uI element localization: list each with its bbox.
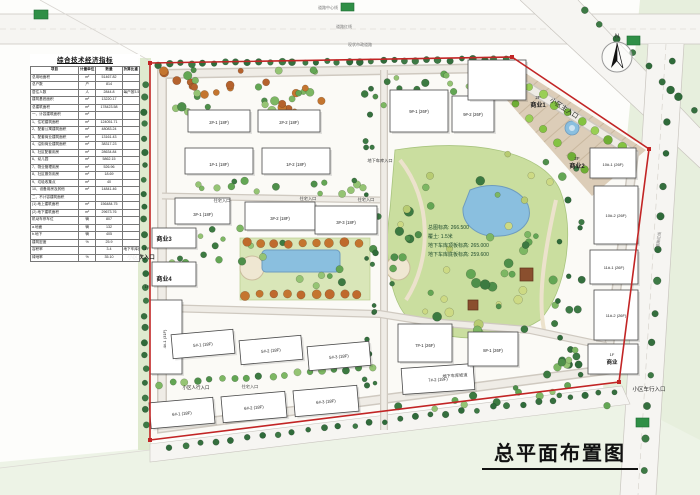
label-building-9-1: 9#-1 (26F) [409,109,429,114]
table-row: 10、设备用房及其他m²14841.46 [31,187,140,195]
label-building-10-1: 10#-1 (26F) [603,162,625,167]
tree [275,432,281,438]
tree [496,304,501,309]
tree [143,366,149,372]
tree [142,406,148,412]
tree [557,335,562,340]
label-shangye3-floor: 1F [145,246,150,251]
tree [405,235,411,241]
table-cell: 总用地面积 [31,74,79,82]
tree [363,138,369,144]
tree [143,422,149,428]
tree [646,63,652,69]
tree [505,222,513,230]
tree [426,172,433,179]
table-cell [122,232,139,240]
label-building-11-1: 11#-1 (26F) [604,265,625,270]
table-cell: 3.4 [96,247,122,255]
tree [578,372,583,377]
tree [170,379,176,385]
tree [566,306,573,313]
tree [254,189,260,195]
tree [403,205,411,213]
table-cell: 8、社区服务用房 [31,172,79,180]
table-cell: m² [78,157,95,165]
table-row: 1、住宅建筑面积m²124051.71 [31,119,140,127]
tree [373,381,377,385]
table-row: 总用地面积m²51467.82 [31,74,140,82]
table-cell: 地下车库面积折半计算 [122,247,139,255]
table-cell [122,179,139,187]
table-cell [122,239,139,247]
tree [480,280,490,290]
label-residence-entrance-2: 住宅入口 [214,197,231,203]
table-cell: 总户数 [31,82,79,90]
tree [596,390,601,395]
tree [659,79,666,86]
table-cell: m² [78,172,95,180]
table-cell: 25.9 [96,239,122,247]
tree [501,270,508,277]
tree [243,238,252,247]
table-cell [122,202,139,210]
tree [275,67,282,74]
tree [447,81,453,87]
tree [288,59,295,66]
table-cell: 2844.8 [96,89,122,97]
table-row: 总户数户814 [31,82,140,90]
table-row: (2) 地下建筑面积m²29673.76 [31,209,140,217]
tree [194,90,201,97]
tree [212,243,219,250]
tree [324,58,330,64]
tree [509,271,515,277]
tree [256,290,263,297]
tree [572,347,578,353]
label-building-3-3: 3#-3 (18F) [336,220,356,225]
table-cell: 容积率 [31,247,79,255]
table-row: 二、不计容建筑面积 [31,194,140,202]
label-building-10-2: 10#-2 (26F) [606,213,628,218]
label-building-1-1: 1#-1 (18F) [209,162,229,167]
tree [423,56,429,62]
tree [539,125,547,133]
tree [469,392,477,400]
tree [240,291,249,300]
table-cell [122,112,139,120]
tree [398,416,404,422]
tree [306,427,311,432]
tree [573,353,580,360]
tree [216,256,223,263]
table-cell: 辆 [78,232,95,240]
tree [232,375,239,382]
table-cell: 5、社区配套用房 [31,149,79,157]
table-cell [122,254,139,262]
table-cell [122,209,139,217]
tree [270,290,278,298]
table-cell: m² [78,149,95,157]
label-elevation-note: 覆土: 1.5米 [428,233,453,240]
table-cell: 526.96 [96,164,122,172]
tree [428,290,434,296]
table-cell: 814 [96,82,122,90]
table-cell [122,127,139,135]
tree [612,390,617,395]
label-building-7-1: 7#-1 (26F) [415,343,435,348]
tree [194,378,201,385]
boundary-marker [647,147,651,151]
tree [214,185,221,192]
boundary-marker [510,55,514,59]
tree [279,100,286,107]
tree [270,240,278,248]
table-cell: 二、不计容建筑面积 [31,194,79,202]
tree [412,413,419,420]
tree [281,372,287,378]
table-row: 4、沿街商业建筑面积m²38317.23 [31,142,140,150]
label-existing-road: 现状市政道路 [348,41,372,47]
tree [458,407,464,413]
tree [227,437,233,443]
tree [428,412,433,417]
tree [372,309,377,314]
tree [648,339,655,346]
table-cell: 40 [96,179,122,187]
table-row: 一、计容建筑面积m² [31,112,140,120]
tree [392,57,398,63]
tree [461,401,468,408]
tree [466,269,476,279]
label-building-11-2: 11#-2 (26F) [606,313,627,318]
tree [643,402,650,409]
table-cell: m² [78,142,95,150]
tree [237,225,244,232]
table-cell [122,172,139,180]
site-plan-drawing: 2F商业12F商业2商业31F商业41F1F商业小区主入口小区次入口小区车行入口… [0,0,700,495]
tree [183,443,189,449]
tree [166,60,173,67]
tree [367,112,373,118]
tree [486,233,494,241]
tree [141,340,148,347]
tree [504,259,513,268]
tree [550,398,556,404]
boundary-marker [617,380,621,384]
table-cell [122,104,139,112]
tree [296,275,303,282]
tree [259,253,266,260]
label-building-9-2: 9#-2 (26F) [463,112,483,117]
tree [195,182,201,188]
tree [533,234,538,239]
tree [441,296,448,303]
table-header-row: 项目 计量单位 数量 折算比重 [31,67,140,75]
tree [296,90,302,96]
tree [471,278,481,288]
tree [660,183,667,190]
tree [198,440,204,446]
tree [591,127,599,135]
tree [443,267,450,274]
tree [373,94,378,99]
tree [596,21,602,27]
tree [213,89,219,95]
table-cell [78,194,95,202]
tree [450,88,457,95]
table-cell [122,187,139,195]
tree [143,82,149,88]
building [468,60,526,100]
tree [191,84,198,91]
table-row: 机动车停车位辆807 [31,217,140,225]
table-cell: 人 [78,89,95,97]
tree [604,135,613,144]
table-cell [122,74,139,82]
pavilion-small [468,300,478,310]
tree [141,177,146,182]
tree [143,270,149,276]
tree [568,395,573,400]
label-elevation-note: 总图标高: 266.500 [428,224,469,231]
road-name-stamp [341,3,354,11]
table-cell: 每户按3.5人计算 [122,89,139,97]
tree [382,420,387,425]
label-residence-entrance-4: 住宅入口 [358,196,375,202]
table-cell [96,194,122,202]
indicator-table: 项目 计量单位 数量 折算比重 总用地面积m²51467.82总户数户814居住… [30,66,140,262]
building [588,344,638,374]
label-road-redline: 道路红线 [336,23,352,29]
tree [415,231,422,238]
tree [141,191,147,197]
header-remark: 折算比重 [122,67,139,75]
tree [394,75,399,80]
building [262,148,330,174]
table-cell: a.地面 [31,224,79,232]
table-cell: 156484.75 [96,202,122,210]
label-elevation-note: 地下车库底板标高: 259.600 [428,251,489,258]
table-cell [122,97,139,105]
tree [209,226,215,232]
tree [200,90,208,98]
table-cell: 10、设备用房及其他 [31,187,79,195]
label-building-3-2: 3#-2 (18F) [270,216,290,221]
tree [652,310,659,317]
table-cell: m² [78,97,95,105]
table-row: 7、物业管理用房m²526.96 [31,164,140,172]
plaza-fountain-center [569,125,575,131]
table-row: 绿地率%35.10 [31,254,140,262]
tree [578,117,586,125]
tree [199,60,206,67]
tree [390,281,395,286]
tree [557,239,562,244]
table-row: 建筑密度%25.9 [31,239,140,247]
table-cell: 124051.71 [96,119,122,127]
tree [324,238,333,247]
table-row: a.地面辆132 [31,224,140,232]
table-row: 建筑基底面积m²13220.17 [31,97,140,105]
tree [341,290,350,299]
tree [141,352,147,358]
table-cell: m² [78,127,95,135]
tree [325,289,335,299]
table-cell: m² [78,104,95,112]
label-shangye1: 商业1 [530,101,546,109]
tree [155,382,162,389]
tree [228,183,235,190]
tree [519,286,527,294]
table-row: 6、幼儿园m²5862.15 [31,157,140,165]
tree [566,357,572,363]
table-cell: 13161.43 [96,134,122,142]
table-row: 2、配套公寓建筑面积m²48083.24 [31,127,140,135]
tree [521,197,528,204]
tree [505,151,511,157]
tree [578,225,583,230]
central-park [387,146,567,338]
table-cell: m² [78,202,95,210]
tree [262,101,269,108]
tree [238,258,246,266]
tree [355,239,363,247]
table-cell: 13220.17 [96,97,122,105]
table-cell: 5862.15 [96,157,122,165]
tree [445,308,454,317]
label-building-2-1: 2#-1 (18F) [209,120,229,125]
tree [657,213,665,221]
boundary-marker [148,438,152,442]
tree [581,7,588,14]
tree [362,377,367,382]
tree [283,290,291,298]
tree [543,371,551,379]
tree [299,239,307,247]
table-cell: (1) 地上建筑面积 [31,202,79,210]
tree [674,93,682,101]
tree [141,313,147,319]
tree [691,107,697,113]
label-building-3-1: 3#-1 (18F) [193,212,213,217]
table-cell: % [78,239,95,247]
table-cell: m² [78,74,95,82]
label-road-centerline: 道路中心线 [318,4,338,10]
tree [474,408,479,413]
label-garage-entrance: 地下车库入口 [367,157,392,164]
tree [366,419,372,425]
table-row: 居住人数人2844.8每户按3.5人计算 [31,89,140,97]
tree [338,278,346,286]
tree [423,309,428,314]
tree [310,67,317,74]
tree [370,262,375,267]
tree [364,383,370,389]
table-cell: 7、物业管理用房 [31,164,79,172]
tree [528,172,535,179]
table-cell [122,157,139,165]
table-cell: m² [78,164,95,172]
tree [302,85,308,91]
table-cell: 29673.76 [96,209,122,217]
tree [340,238,349,247]
tree [312,290,321,299]
table-cell: 3、配套商业建筑面积 [31,134,79,142]
label-shangye2: 商业2 [569,162,585,170]
tree [347,187,354,194]
tree [536,398,543,405]
tree [140,109,147,116]
tree [226,81,234,89]
tree [524,231,531,238]
table-cell: 38317.23 [96,142,122,150]
table-cell [122,224,139,232]
tree [142,149,149,156]
tree [546,179,553,186]
tree [520,402,526,408]
tree [243,375,250,382]
tree [503,402,510,409]
tree [238,68,243,73]
table-cell [122,142,139,150]
label-shangye5: 商业 [606,358,618,366]
tree [642,435,650,443]
tree [142,380,148,386]
tree [263,79,270,86]
tree [495,192,500,197]
table-row: 9、垃圾收集点m²40 [31,179,140,187]
tree [372,303,376,307]
tree [490,403,496,409]
tree [663,150,669,156]
table-cell: m² [78,187,95,195]
tree [142,395,148,401]
label-vehicle-entrance: 小区车行入口 [632,385,665,393]
boundary-marker [148,61,152,65]
tree [555,298,560,303]
table-row: (1) 地上建筑面积m²156484.75 [31,202,140,210]
tree [284,240,292,248]
label-pedestrian-entrance: 小区人行入口 [183,384,210,391]
tree [166,445,172,451]
tree [173,76,181,84]
tree [553,139,561,147]
table-cell: 居住人数 [31,89,79,97]
table-cell [122,149,139,157]
label-shangye4: 商业4 [156,275,172,283]
table-cell: 405 [96,232,122,240]
table-cell: m² [78,209,95,217]
tree [142,204,148,210]
indicator-table-panel: 综合技术经济指标 项目 计量单位 数量 折算比重 总用地面积m²51467.82… [30,54,140,262]
tree [311,181,318,188]
tree [360,184,367,191]
tree [352,178,357,183]
tree [141,94,148,101]
table-cell: m² [78,119,95,127]
table-cell: 一、计容建筑面积 [31,112,79,120]
tree [444,73,450,79]
table-cell [122,194,139,202]
tree [368,86,373,91]
header-unit: 计量单位 [78,67,95,75]
tree [648,372,654,378]
tree [363,145,368,150]
table-cell: 6、幼儿园 [31,157,79,165]
tree [381,57,388,64]
table-cell [122,217,139,225]
tree [557,393,562,398]
